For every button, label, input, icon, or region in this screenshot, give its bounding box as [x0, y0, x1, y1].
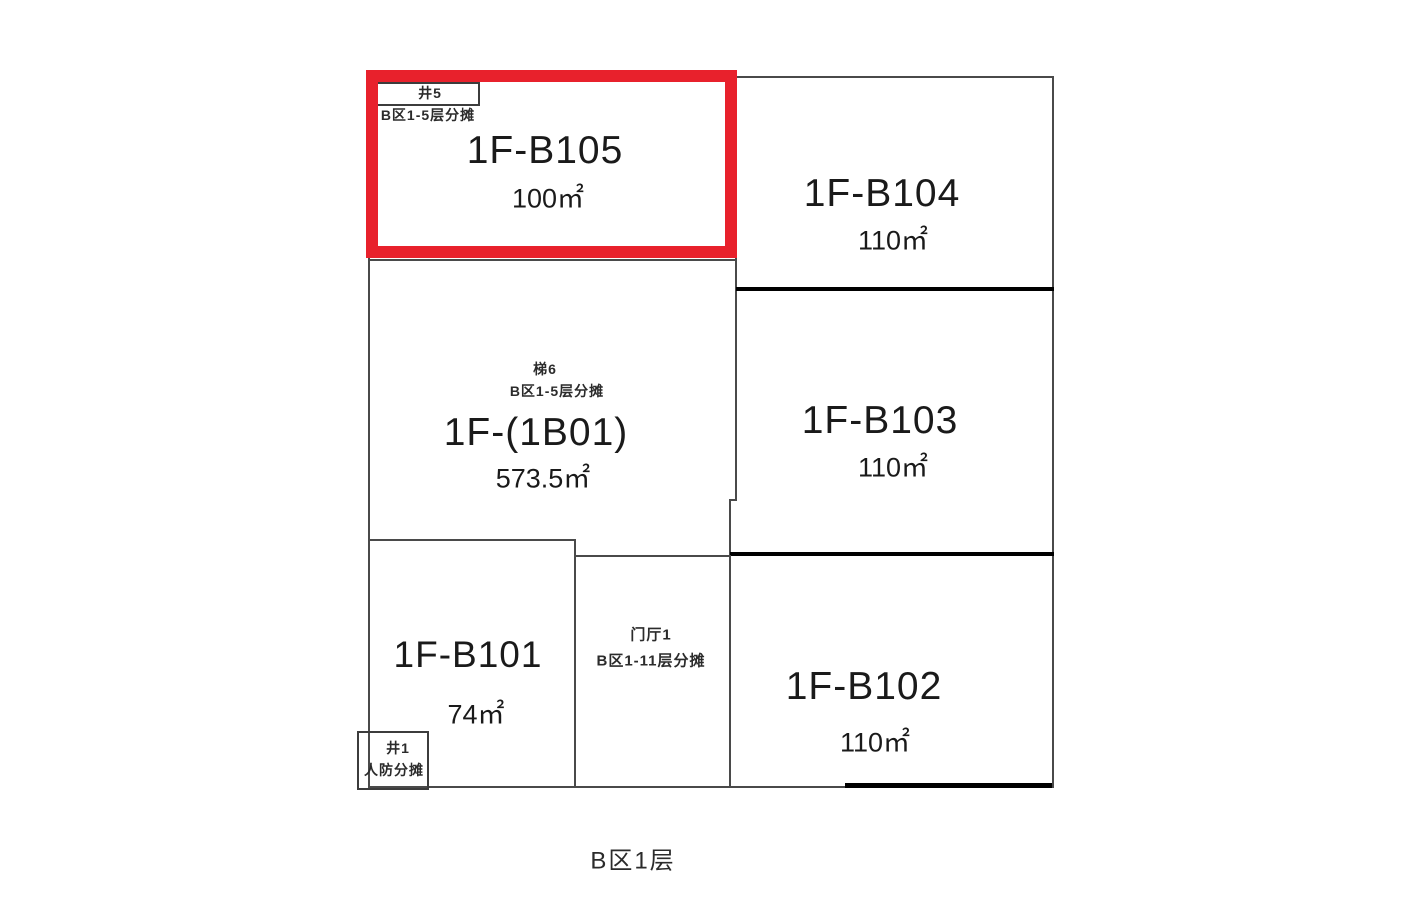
wall-b103-b102-divider — [730, 552, 1054, 556]
lobby1-label: 门厅1 — [630, 624, 671, 645]
room-b103-area: 110㎡ — [858, 446, 928, 485]
wall-under-highlight — [368, 259, 737, 261]
room-1b01-name: 1F-(1B01) — [444, 411, 629, 455]
room-b104-name: 1F-B104 — [804, 172, 961, 216]
room-b103-name: 1F-B103 — [802, 399, 959, 443]
stair6-label: 梯6 — [533, 359, 557, 379]
room-b101-area: 74㎡ — [447, 693, 504, 732]
wall-top-right — [735, 76, 1054, 78]
room-b101-name: 1F-B101 — [394, 634, 543, 676]
floor-plan: 井5 B区1-5层分摊 1F-B105 100㎡ 1F-B104 110㎡ 梯6… — [0, 0, 1416, 897]
wall-bottom-thick — [845, 783, 1052, 788]
room-b102-area: 110㎡ — [840, 721, 910, 760]
floor-caption: B区1层 — [590, 841, 675, 876]
wall-b104-b103-divider — [736, 287, 1054, 291]
wall-1b01-b101-divider — [368, 539, 576, 541]
room-1b01-area: 573.5㎡ — [496, 457, 591, 496]
wall-1b01-lobby-divider — [574, 555, 731, 557]
wall-b101-right — [574, 539, 576, 788]
room-b104-area: 110㎡ — [858, 219, 928, 258]
wall-center-vertical-lower — [729, 500, 731, 788]
room-b102-name: 1F-B102 — [786, 665, 943, 709]
shaft1-label: 井1 — [386, 738, 410, 758]
stair6-note: B区1-5层分摊 — [510, 381, 604, 401]
shaft1-note: 人防分摊 — [364, 760, 424, 780]
highlight-box-b105 — [366, 70, 737, 258]
lobby1-note: B区1-11层分摊 — [596, 650, 705, 671]
wall-right — [1052, 76, 1054, 788]
